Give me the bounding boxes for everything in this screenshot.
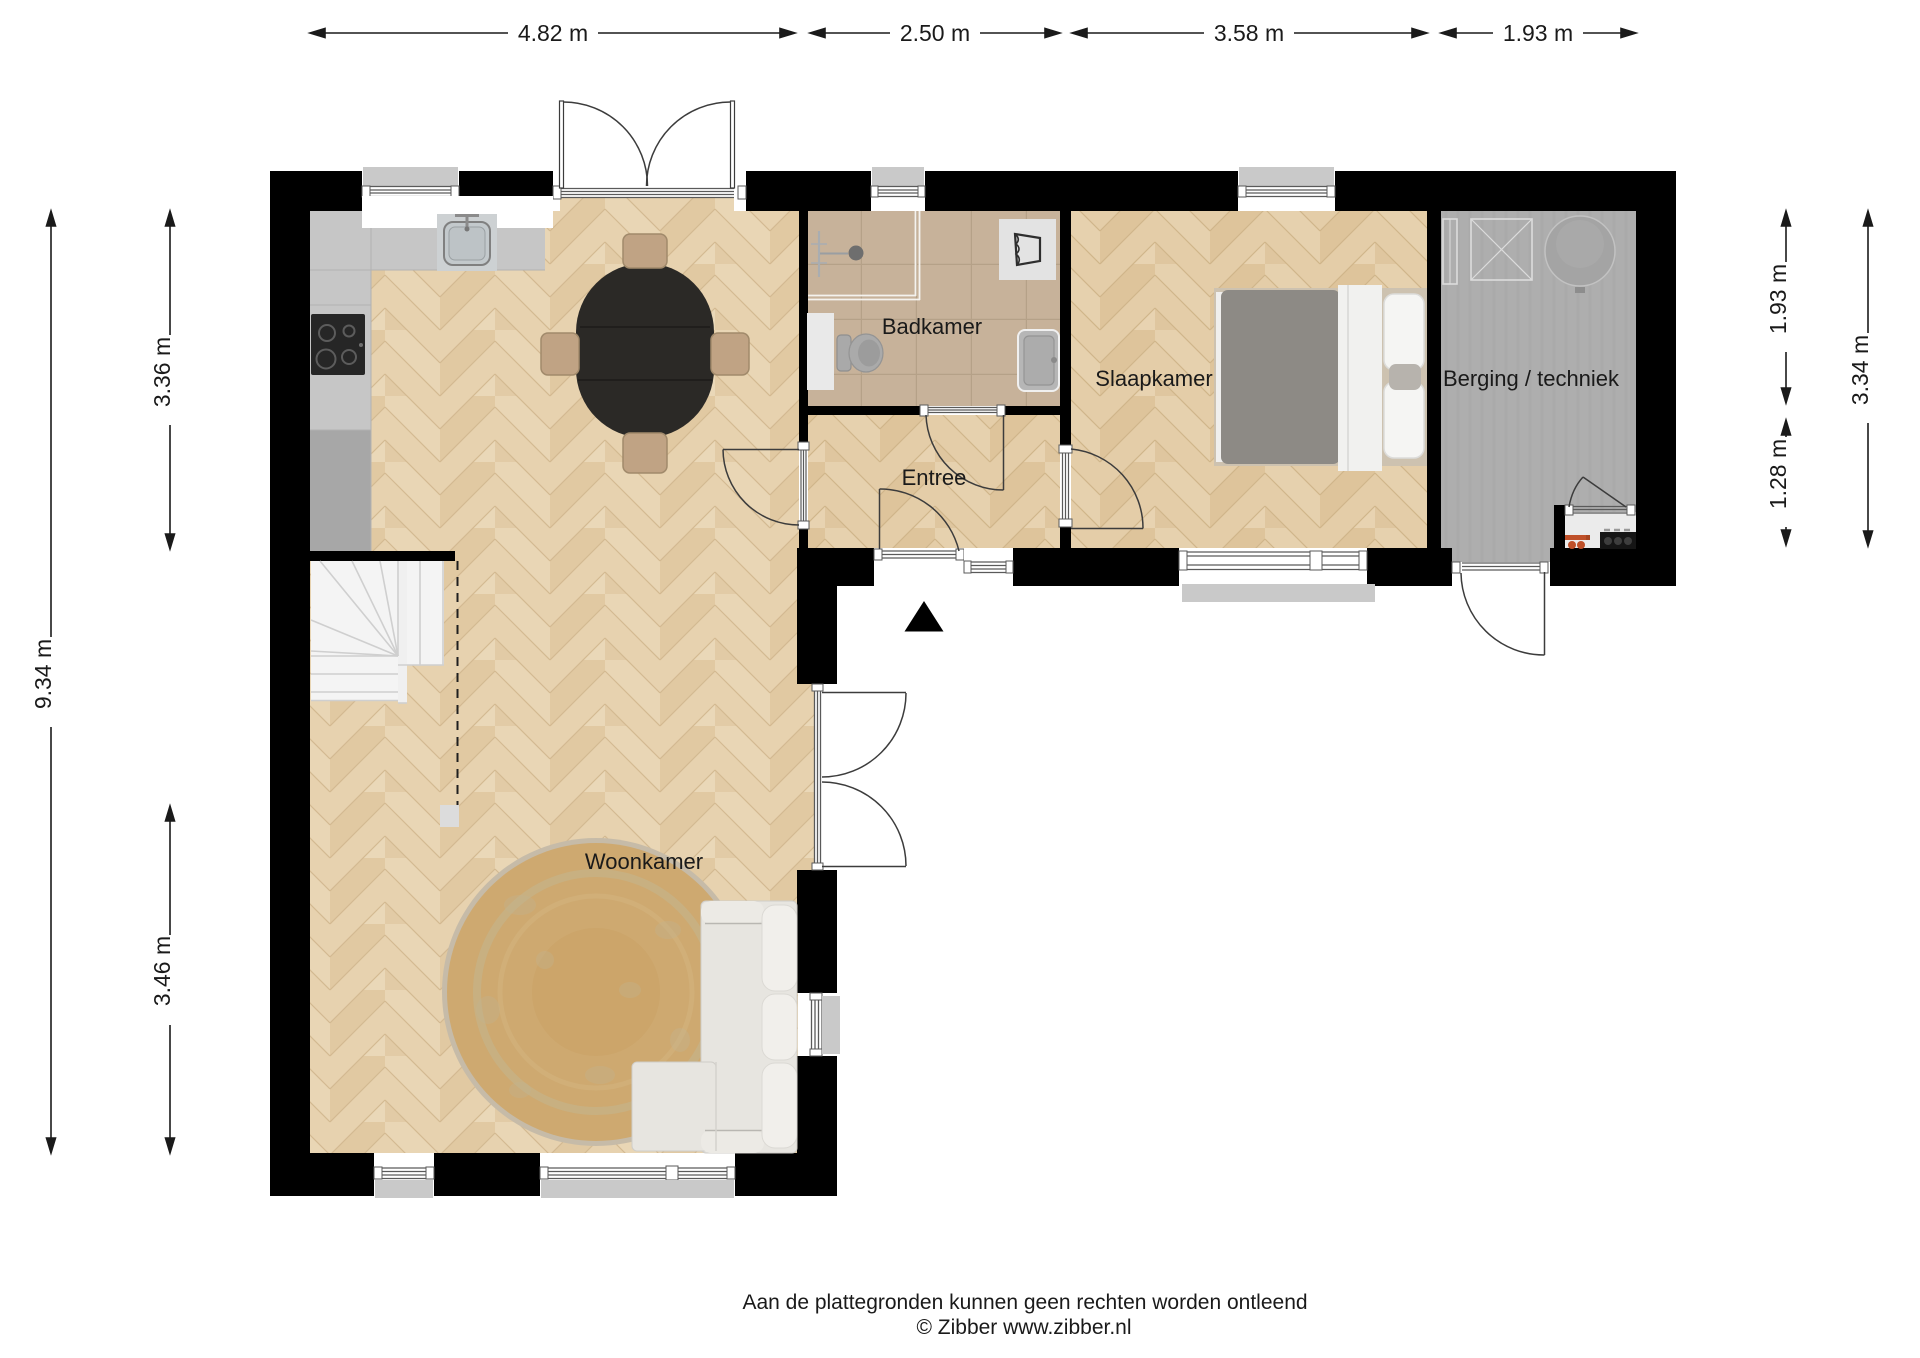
svg-text:4.82 m: 4.82 m bbox=[518, 20, 588, 46]
svg-text:Berging / techniek: Berging / techniek bbox=[1443, 366, 1620, 391]
svg-text:Aan de plattegronden kunnen ge: Aan de plattegronden kunnen geen rechten… bbox=[742, 1291, 1307, 1314]
svg-text:3.36 m: 3.36 m bbox=[149, 337, 175, 407]
svg-text:2.50 m: 2.50 m bbox=[900, 20, 970, 46]
svg-text:3.34 m: 3.34 m bbox=[1847, 335, 1873, 405]
svg-text:3.46 m: 3.46 m bbox=[149, 936, 175, 1006]
svg-text:Entree: Entree bbox=[902, 465, 967, 490]
svg-text:© Zibber www.zibber.nl: © Zibber www.zibber.nl bbox=[916, 1316, 1131, 1339]
svg-text:Badkamer: Badkamer bbox=[882, 314, 982, 339]
svg-text:1.28 m: 1.28 m bbox=[1765, 439, 1791, 509]
svg-text:1.93 m: 1.93 m bbox=[1503, 20, 1573, 46]
svg-text:1.93 m: 1.93 m bbox=[1765, 264, 1791, 334]
svg-text:Slaapkamer: Slaapkamer bbox=[1095, 366, 1212, 391]
svg-text:3.58 m: 3.58 m bbox=[1214, 20, 1284, 46]
svg-text:Woonkamer: Woonkamer bbox=[585, 849, 703, 874]
svg-text:9.34 m: 9.34 m bbox=[30, 639, 56, 709]
